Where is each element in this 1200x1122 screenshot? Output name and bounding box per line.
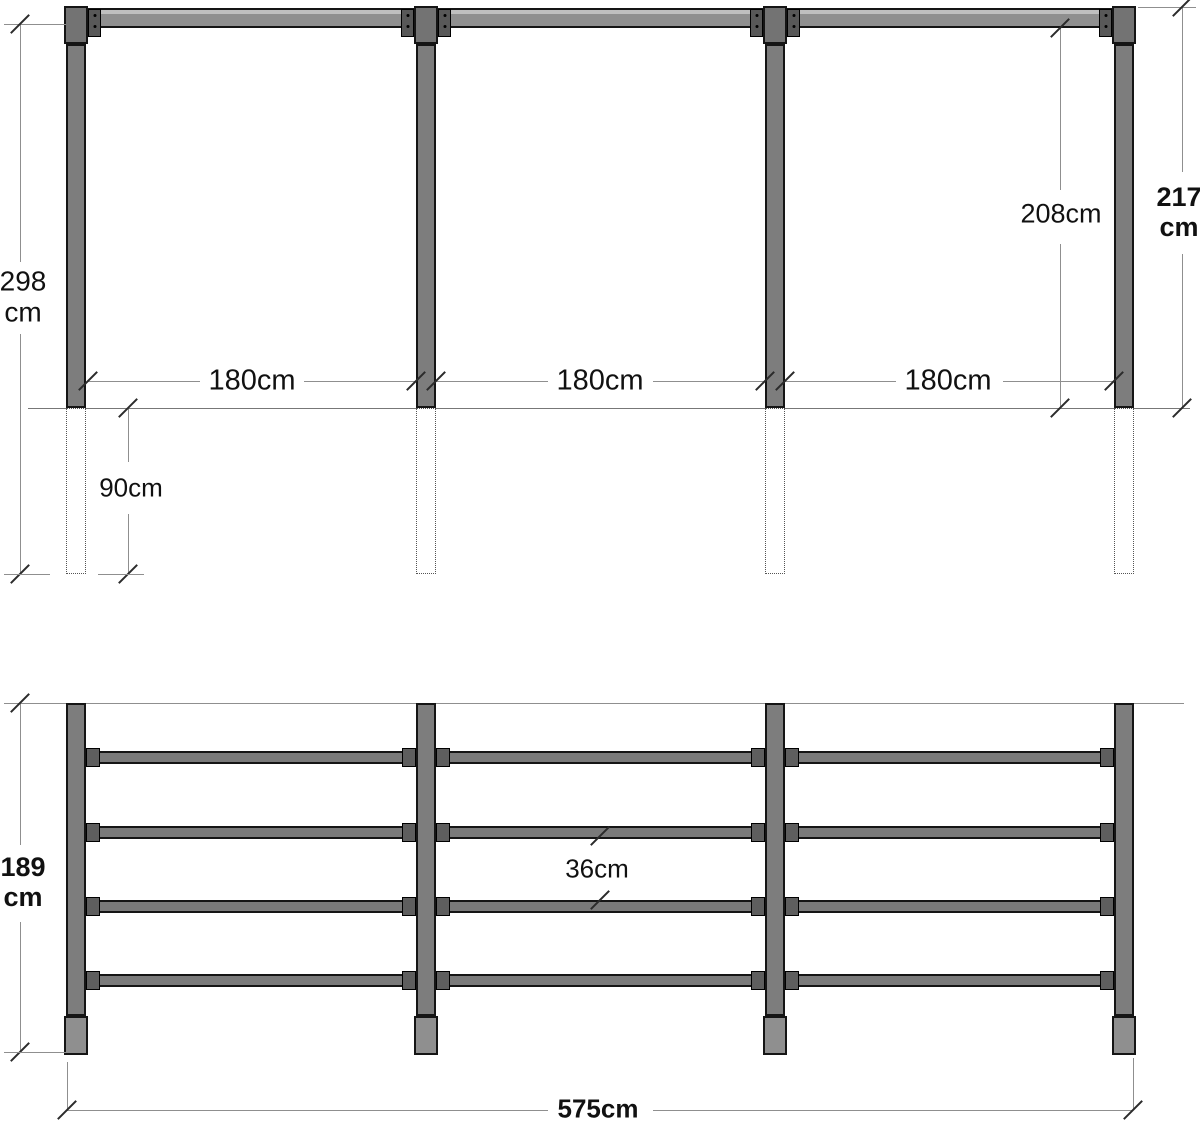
extension-line [67,1062,68,1109]
top-beam [86,8,1115,28]
bolt-bracket [750,9,763,37]
bolt-bracket [438,9,451,37]
extension-line [4,1052,84,1053]
buried-post-dashed [765,408,785,574]
dimension-line-post-length [20,24,21,262]
post-cap [763,6,787,44]
dim-label-bay-2: 180cm [553,365,646,398]
dim-label-bay-3: 180cm [901,365,994,398]
rail [436,974,765,987]
bolt-bracket [401,9,414,37]
dimension-line-buried-depth [128,514,129,574]
dimension-line-total-height [1182,254,1183,408]
dim-unit: cm [0,882,45,912]
extension-line [4,24,66,25]
post-cap [414,6,438,44]
dimension-line-bay-1 [304,381,416,382]
rail [86,751,416,764]
dimension-line-post-height [20,922,21,1052]
dimension-line-post-height [20,703,21,845]
post [1114,703,1134,1016]
bolt-bracket [787,9,800,37]
dimension-line-post-length [20,334,21,574]
dimension-line-total-width [653,1110,1133,1111]
post [66,44,86,408]
technical-drawing: 298 cm 90cm 180cm 180cm 180cm 208cm [0,0,1200,1122]
buried-post-dashed [416,408,436,574]
dimension-line-bay-3 [785,381,896,382]
post [1114,44,1134,408]
bolt-bracket [88,9,101,37]
extension-line [98,574,144,575]
post [416,703,436,1016]
bolt-bracket [1099,9,1112,37]
dimension-line-total-width [67,1110,548,1111]
post [765,703,785,1016]
rail [785,974,1114,987]
extension-line [1138,7,1196,8]
dimension-line-total-height [1182,7,1183,172]
dimension-line-bay-2 [653,381,765,382]
dim-label-total-height: 217 cm [1153,182,1200,242]
post-base [763,1016,787,1055]
rail [86,900,416,913]
dim-value: 217 [1156,182,1200,212]
rail [86,826,416,839]
extension-line [4,703,1184,704]
extension-line [4,574,50,575]
dim-label-rail-spacing: 36cm [562,854,632,885]
dim-unit: cm [0,297,46,328]
dim-label-clear-height: 208cm [1017,199,1104,230]
ground-line [28,408,1190,409]
post-base [414,1016,438,1055]
dimension-line-buried-depth [128,408,129,462]
dim-label-total-width: 575cm [555,1094,642,1122]
rail [785,826,1114,839]
buried-post-dashed [66,408,86,574]
dim-unit: cm [1156,212,1200,242]
post-cap [1112,6,1136,44]
post-base [1112,1016,1136,1055]
dim-value: 298 [0,266,46,297]
dim-label-post-height: 189 cm [0,852,49,912]
dimension-line-bay-1 [88,381,200,382]
dimension-line-bay-3 [1003,381,1114,382]
dim-label-post-length: 298 cm [0,266,49,329]
post-base [64,1016,88,1055]
post [765,44,785,408]
post [416,44,436,408]
rail [785,900,1114,913]
dimension-line-clear-height [1060,244,1061,408]
rail [436,751,765,764]
rail [86,974,416,987]
dimension-line-bay-2 [436,381,548,382]
rail [785,751,1114,764]
buried-post-dashed [1114,408,1134,574]
post [66,703,86,1016]
dimension-line-clear-height [1060,28,1061,190]
post-cap [64,6,88,44]
dim-label-bay-1: 180cm [205,365,298,398]
dim-value: 189 [0,852,45,882]
extension-line [1133,1058,1134,1109]
rail [436,900,765,913]
dim-label-buried-depth: 90cm [96,473,166,504]
